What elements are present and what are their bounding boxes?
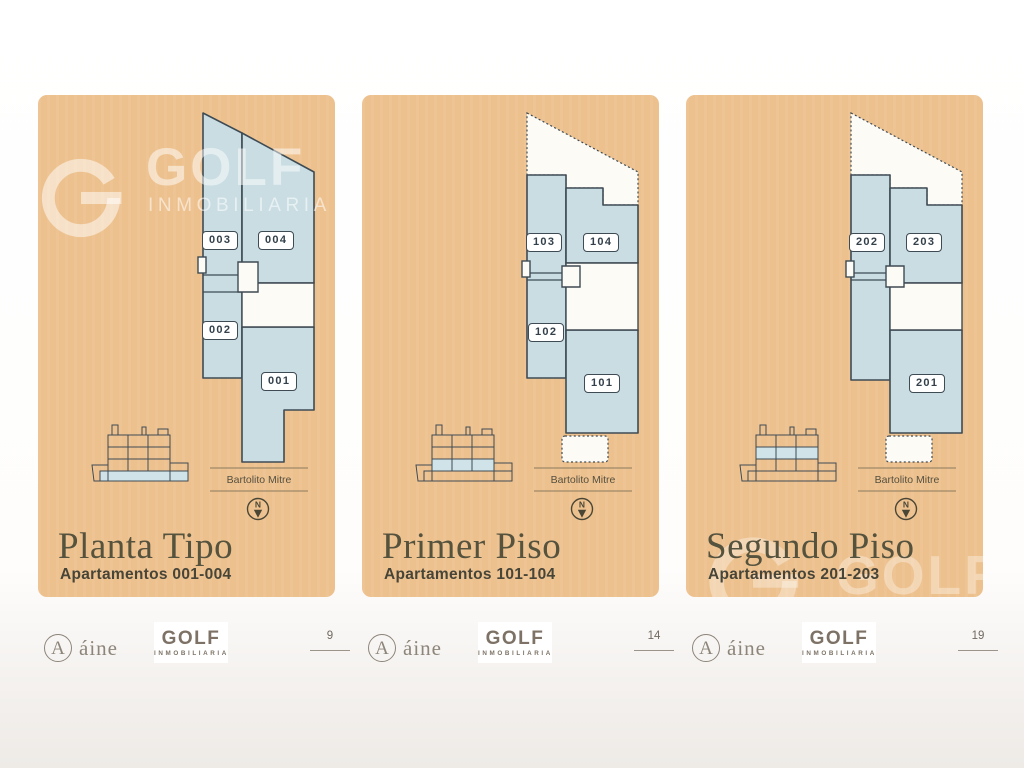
entry-tab [198, 257, 206, 273]
elevation-sketch [740, 425, 836, 481]
unit-label-003: 003 [202, 231, 238, 250]
golf-sub-wordmark: INMOBILIARIA [478, 651, 552, 657]
floor-plan-svg: Bartolito Mitre N [38, 95, 335, 597]
street-label: Bartolito Mitre [227, 474, 292, 486]
entry-tab [522, 261, 530, 277]
page-number-rule [310, 650, 350, 651]
unit-label-103: 103 [526, 233, 562, 252]
room-left-column [527, 175, 566, 378]
floor-panel-primer-piso: Bartolito Mitre N [362, 95, 659, 597]
svg-text:N: N [579, 500, 585, 510]
aine-logo: A áine [692, 634, 766, 662]
golf-sub-wordmark: INMOBILIARIA [154, 651, 228, 657]
stair-void [886, 266, 904, 287]
footer-column-2: A áine GOLF INMOBILIARIA 14 [362, 620, 712, 668]
north-indicator-icon: N [248, 499, 269, 520]
golf-footer-logo: GOLF INMOBILIARIA [154, 622, 228, 663]
page-number-rule [958, 650, 998, 651]
balcony-void [562, 436, 608, 462]
aine-icon: A [44, 634, 72, 662]
aine-wordmark: áine [403, 636, 442, 661]
page-number: 19 [958, 630, 998, 642]
floor-plan-svg: Bartolito Mitre N [362, 95, 659, 597]
panel-subtitle: Apartamentos 201-203 [708, 566, 879, 584]
floor-panel-segundo-piso: Bartolito Mitre N [686, 95, 983, 597]
unit-label-002: 002 [202, 321, 238, 340]
svg-text:N: N [255, 500, 261, 510]
unit-label-201: 201 [909, 374, 945, 393]
stair-void [238, 262, 258, 292]
golf-wordmark: GOLF [802, 629, 876, 648]
golf-wordmark: GOLF [478, 629, 552, 648]
aine-logo: A áine [368, 634, 442, 662]
entry-tab [846, 261, 854, 277]
unit-label-102: 102 [528, 323, 564, 342]
aine-icon: A [368, 634, 396, 662]
unit-label-004: 004 [258, 231, 294, 250]
svg-text:N: N [903, 500, 909, 510]
panel-title: Planta Tipo [58, 525, 233, 568]
balcony-void [886, 436, 932, 462]
footer-column-1: A áine GOLF INMOBILIARIA 9 [38, 620, 388, 668]
brochure-page: { "watermark": { "brand": "GOLF", "sub":… [0, 0, 1024, 768]
golf-footer-logo: GOLF INMOBILIARIA [802, 622, 876, 663]
unit-label-203: 203 [906, 233, 942, 252]
panel-subtitle: Apartamentos 001-004 [60, 566, 231, 584]
unit-label-202: 202 [849, 233, 885, 252]
footer-column-3: A áine GOLF INMOBILIARIA 19 [686, 620, 1024, 668]
aine-logo: A áine [44, 634, 118, 662]
north-indicator-icon: N [896, 499, 917, 520]
aine-icon: A [692, 634, 720, 662]
panel-subtitle: Apartamentos 101-104 [384, 566, 555, 584]
unit-label-101: 101 [584, 374, 620, 393]
room-202 [851, 175, 890, 380]
room-001 [242, 327, 314, 462]
patio-void [890, 283, 962, 330]
aine-wordmark: áine [727, 636, 766, 661]
page-number: 9 [310, 630, 350, 642]
floor-plan-svg: Bartolito Mitre N [686, 95, 983, 597]
aine-wordmark: áine [79, 636, 118, 661]
north-indicator-icon: N [572, 499, 593, 520]
page-number-rule [634, 650, 674, 651]
street-label: Bartolito Mitre [551, 474, 616, 486]
page-number: 14 [634, 630, 674, 642]
elevation-sketch [92, 425, 188, 481]
elevation-sketch [416, 425, 512, 481]
room-004 [242, 133, 314, 283]
street-label: Bartolito Mitre [875, 474, 940, 486]
unit-label-104: 104 [583, 233, 619, 252]
panel-title: Segundo Piso [706, 525, 915, 568]
floor-panel-planta-tipo: Bartolito Mitre N [38, 95, 335, 597]
panel-title: Primer Piso [382, 525, 561, 568]
unit-label-001: 001 [261, 372, 297, 391]
golf-footer-logo: GOLF INMOBILIARIA [478, 622, 552, 663]
golf-sub-wordmark: INMOBILIARIA [802, 651, 876, 657]
golf-wordmark: GOLF [154, 629, 228, 648]
stair-void [562, 266, 580, 287]
